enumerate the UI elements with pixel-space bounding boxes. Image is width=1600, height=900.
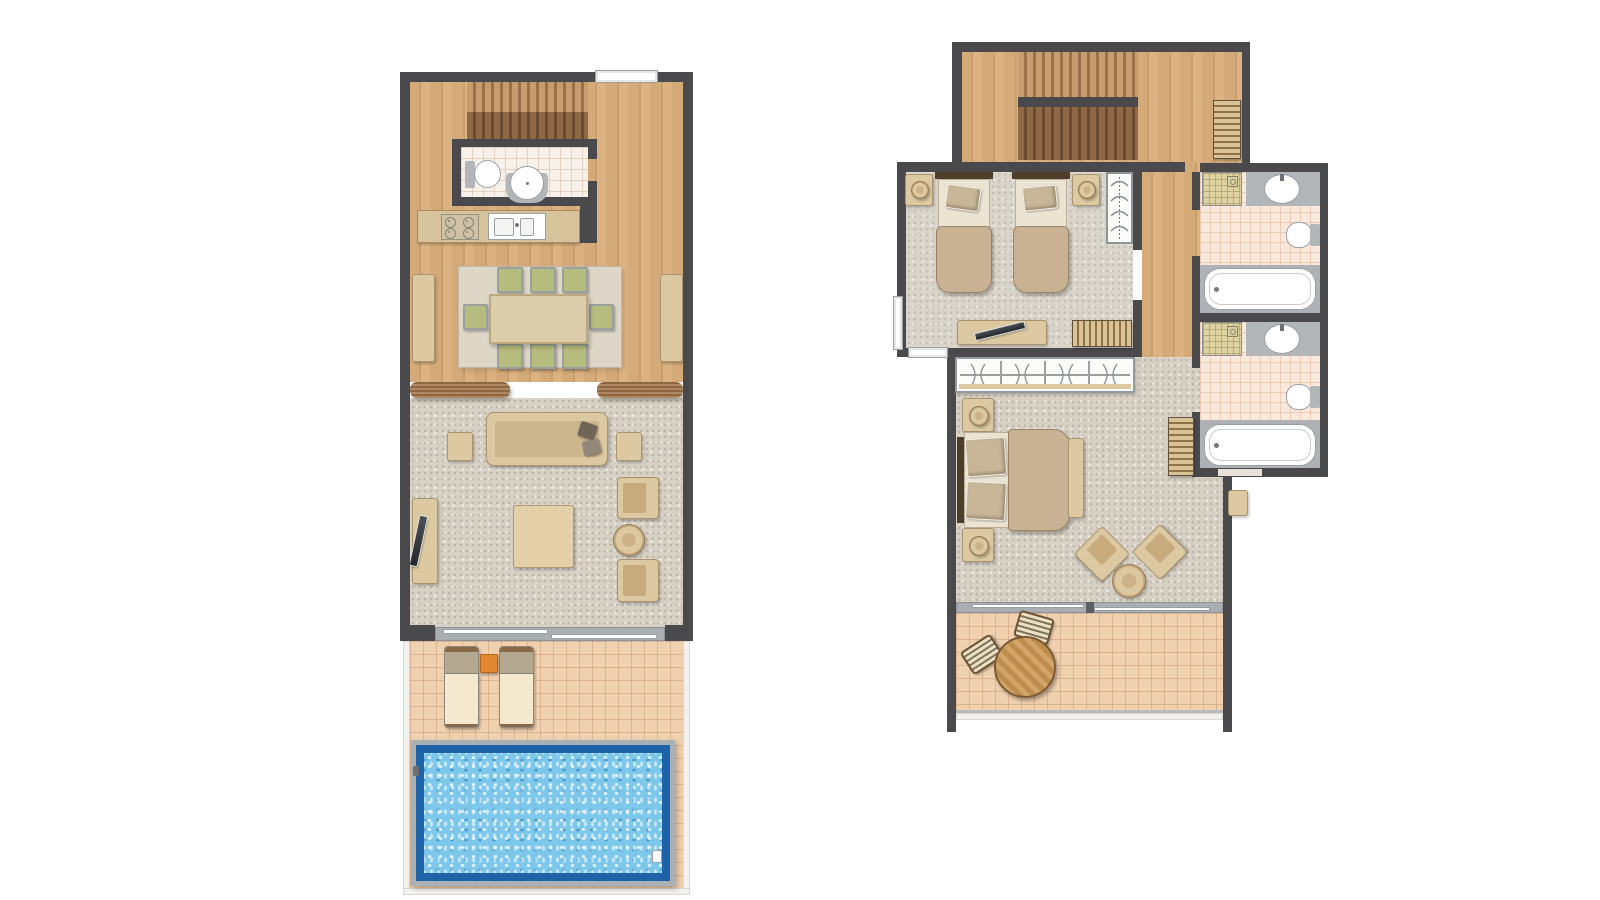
duvet bbox=[936, 226, 992, 293]
nightstand-lamp bbox=[1078, 181, 1096, 199]
window bbox=[908, 347, 948, 358]
double-bed-headboard bbox=[957, 437, 964, 523]
stair-hall-wall-left bbox=[952, 42, 962, 163]
balcony-wall-left bbox=[947, 602, 956, 732]
bedroom-wall-top bbox=[897, 162, 1142, 172]
bathroom-wall-top bbox=[1200, 163, 1328, 172]
nightstand-lamp bbox=[911, 181, 929, 199]
built-in-closet bbox=[955, 357, 1135, 393]
balcony-edge bbox=[956, 713, 1223, 720]
toilet-tank bbox=[1310, 224, 1320, 246]
bathtub-drain bbox=[1214, 287, 1219, 292]
bathtub-icon bbox=[1204, 268, 1316, 310]
nightstand bbox=[1072, 174, 1100, 206]
bathtub-drain bbox=[1214, 443, 1219, 448]
nightstand-lamp bbox=[969, 536, 989, 556]
duvet bbox=[1008, 429, 1070, 531]
toilet-tank bbox=[1310, 386, 1320, 408]
pillow bbox=[965, 437, 1008, 478]
armchair-seat bbox=[1144, 532, 1175, 563]
shower-drain-icon bbox=[1227, 176, 1238, 187]
bathroom-divider-wall bbox=[1192, 313, 1328, 322]
staircase-landing-wall bbox=[1018, 97, 1138, 107]
nightstand bbox=[962, 398, 994, 432]
pillow bbox=[944, 184, 981, 212]
dresser bbox=[1072, 320, 1132, 347]
balcony-wall-right bbox=[1223, 602, 1232, 732]
round-side-table bbox=[1112, 564, 1146, 598]
faucet-icon bbox=[1280, 174, 1284, 181]
bed-bench bbox=[1068, 438, 1084, 518]
duvet bbox=[1013, 226, 1069, 293]
nightstand-lamp bbox=[969, 406, 989, 426]
nightstand bbox=[962, 528, 994, 562]
upper-floor-plan bbox=[0, 0, 1600, 900]
nightstand bbox=[905, 174, 933, 206]
single-bed-headboard bbox=[1012, 172, 1070, 179]
window bbox=[893, 296, 903, 350]
hangers-icon bbox=[1108, 174, 1131, 242]
closet-shelf bbox=[959, 384, 1131, 389]
door-threshold bbox=[1218, 469, 1262, 476]
sliding-door-mullion bbox=[1086, 602, 1094, 613]
bedroom-wall-right-upper bbox=[1133, 162, 1142, 250]
armchair-seat bbox=[1086, 534, 1117, 565]
staircase-upper-flight bbox=[1018, 52, 1138, 97]
sliding-door-pane bbox=[1094, 607, 1210, 611]
bathroom-wall-left-stub bbox=[1192, 322, 1200, 368]
sliding-door-pane bbox=[972, 604, 1084, 608]
shelf bbox=[1213, 100, 1241, 159]
toilet-icon bbox=[1286, 384, 1312, 410]
shower-drain-icon bbox=[1227, 326, 1238, 337]
bathtub-rim bbox=[1209, 273, 1311, 305]
staircase-lower-flight bbox=[1018, 107, 1138, 160]
pillow bbox=[1022, 184, 1058, 211]
dresser bbox=[1168, 417, 1194, 476]
outer-wall-top bbox=[952, 42, 1250, 52]
bathtub-icon bbox=[1204, 424, 1316, 466]
bistro-table bbox=[994, 636, 1056, 698]
bathroom-wall-left-stub bbox=[1192, 172, 1200, 210]
wardrobe bbox=[1106, 172, 1133, 244]
bathtub-rim bbox=[1209, 429, 1311, 461]
stair-hall-wall-right bbox=[1242, 42, 1250, 172]
floor-plan-canvas bbox=[0, 0, 1600, 900]
faucet-icon bbox=[1280, 324, 1284, 331]
single-bed-headboard bbox=[935, 172, 993, 179]
hallway-wall-top bbox=[1142, 162, 1185, 172]
toilet-icon bbox=[1286, 222, 1312, 248]
door-mat bbox=[1228, 490, 1248, 516]
pillow bbox=[965, 481, 1007, 521]
